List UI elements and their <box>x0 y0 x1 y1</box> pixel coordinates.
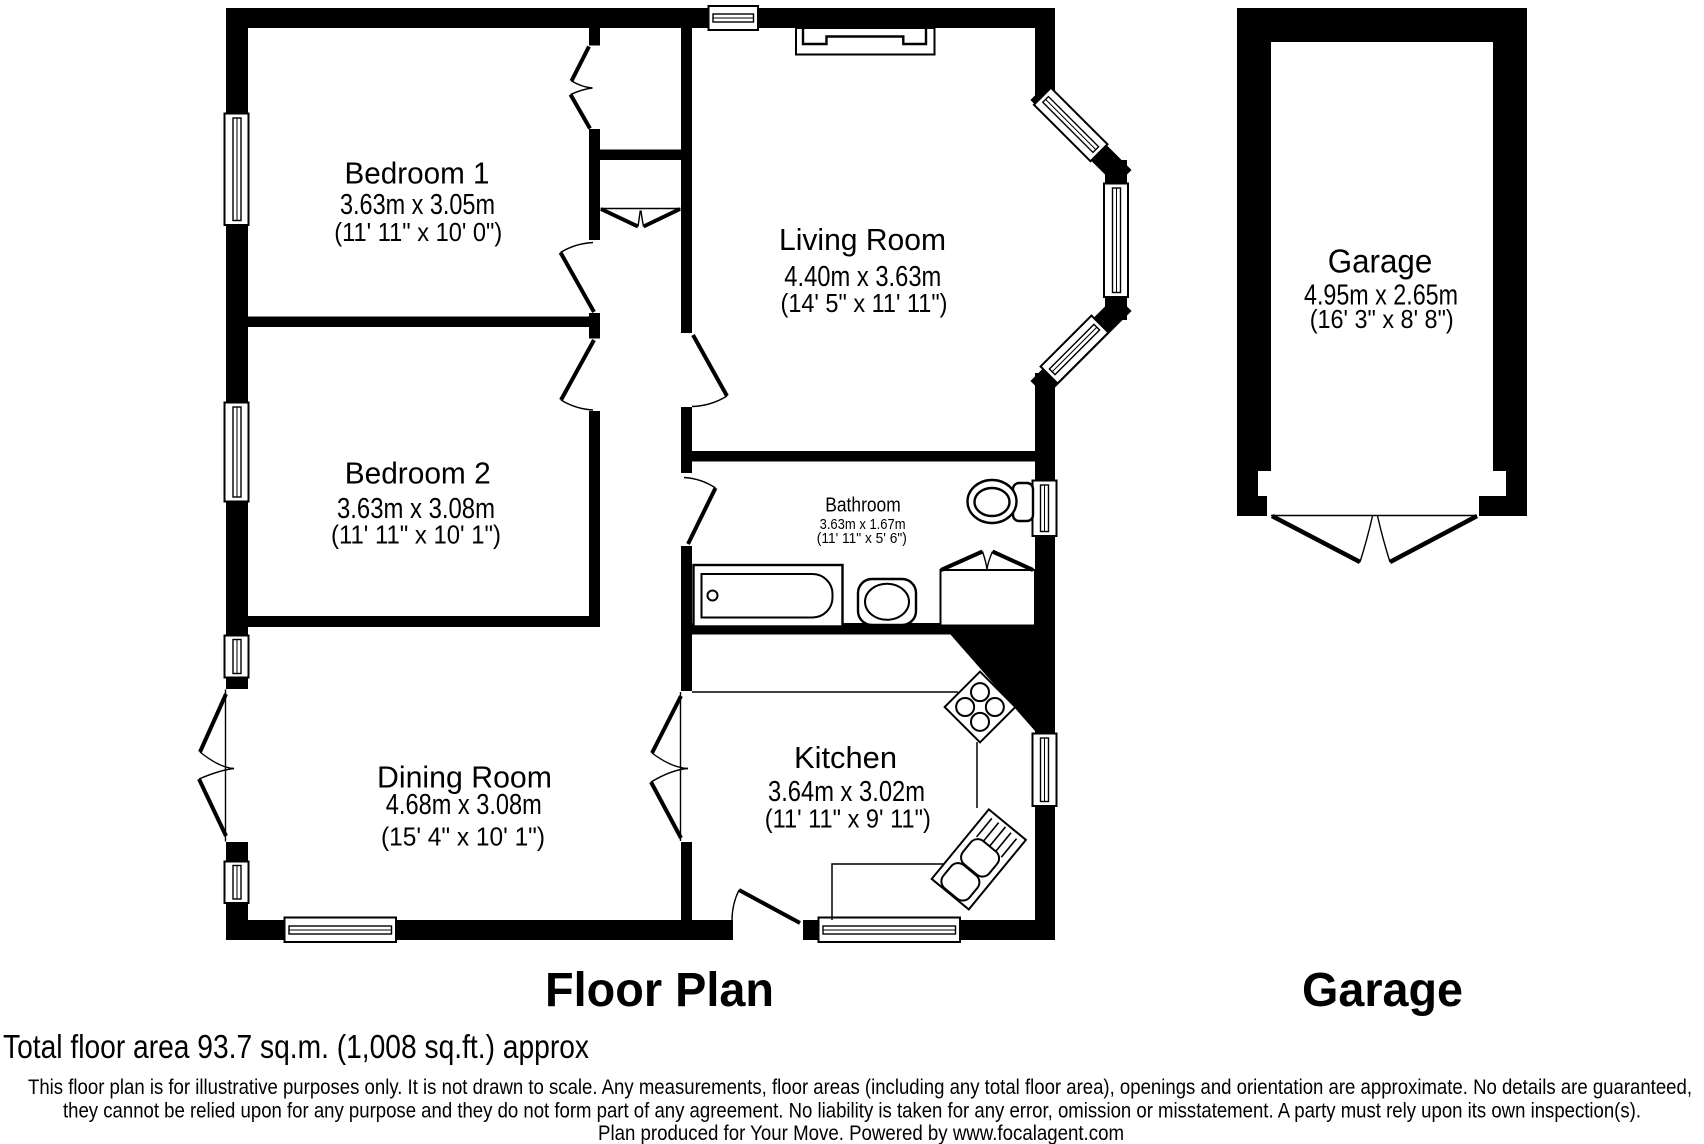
svg-text:Total floor area 93.7 sq.m. (1: Total floor area 93.7 sq.m. (1,008 sq.ft… <box>3 1028 589 1065</box>
svg-text:4.68m x 3.08m: 4.68m x 3.08m <box>386 789 542 821</box>
svg-text:Bedroom 2: Bedroom 2 <box>345 456 491 491</box>
svg-text:Kitchen: Kitchen <box>794 740 897 775</box>
svg-text:(16' 3" x 8' 8"): (16' 3" x 8' 8") <box>1310 304 1454 334</box>
svg-text:Garage: Garage <box>1302 964 1463 1017</box>
svg-text:Plan produced for Your Move. P: Plan produced for Your Move. Powered by … <box>598 1122 1124 1144</box>
svg-text:Living Room: Living Room <box>779 222 946 257</box>
svg-text:(14' 5" x 11' 11"): (14' 5" x 11' 11") <box>781 288 948 318</box>
svg-text:they cannot be relied upon for: they cannot be relied upon for any purpo… <box>63 1100 1641 1123</box>
svg-text:Bedroom 1: Bedroom 1 <box>345 156 490 191</box>
svg-text:(11' 11" x 9' 11"): (11' 11" x 9' 11") <box>765 804 931 834</box>
svg-text:This floor plan is for illustr: This floor plan is for illustrative purp… <box>28 1076 1692 1099</box>
svg-text:Garage: Garage <box>1328 243 1433 280</box>
svg-text:Floor Plan: Floor Plan <box>545 964 774 1017</box>
svg-text:(11' 11" x 10' 1"): (11' 11" x 10' 1") <box>331 520 501 550</box>
svg-text:(11' 11" x 10' 0"): (11' 11" x 10' 0") <box>334 217 502 247</box>
svg-text:(11' 11" x 5' 6"): (11' 11" x 5' 6") <box>817 531 907 547</box>
svg-text:Bathroom: Bathroom <box>825 495 901 517</box>
svg-text:(15' 4" x 10' 1"): (15' 4" x 10' 1") <box>381 822 545 852</box>
